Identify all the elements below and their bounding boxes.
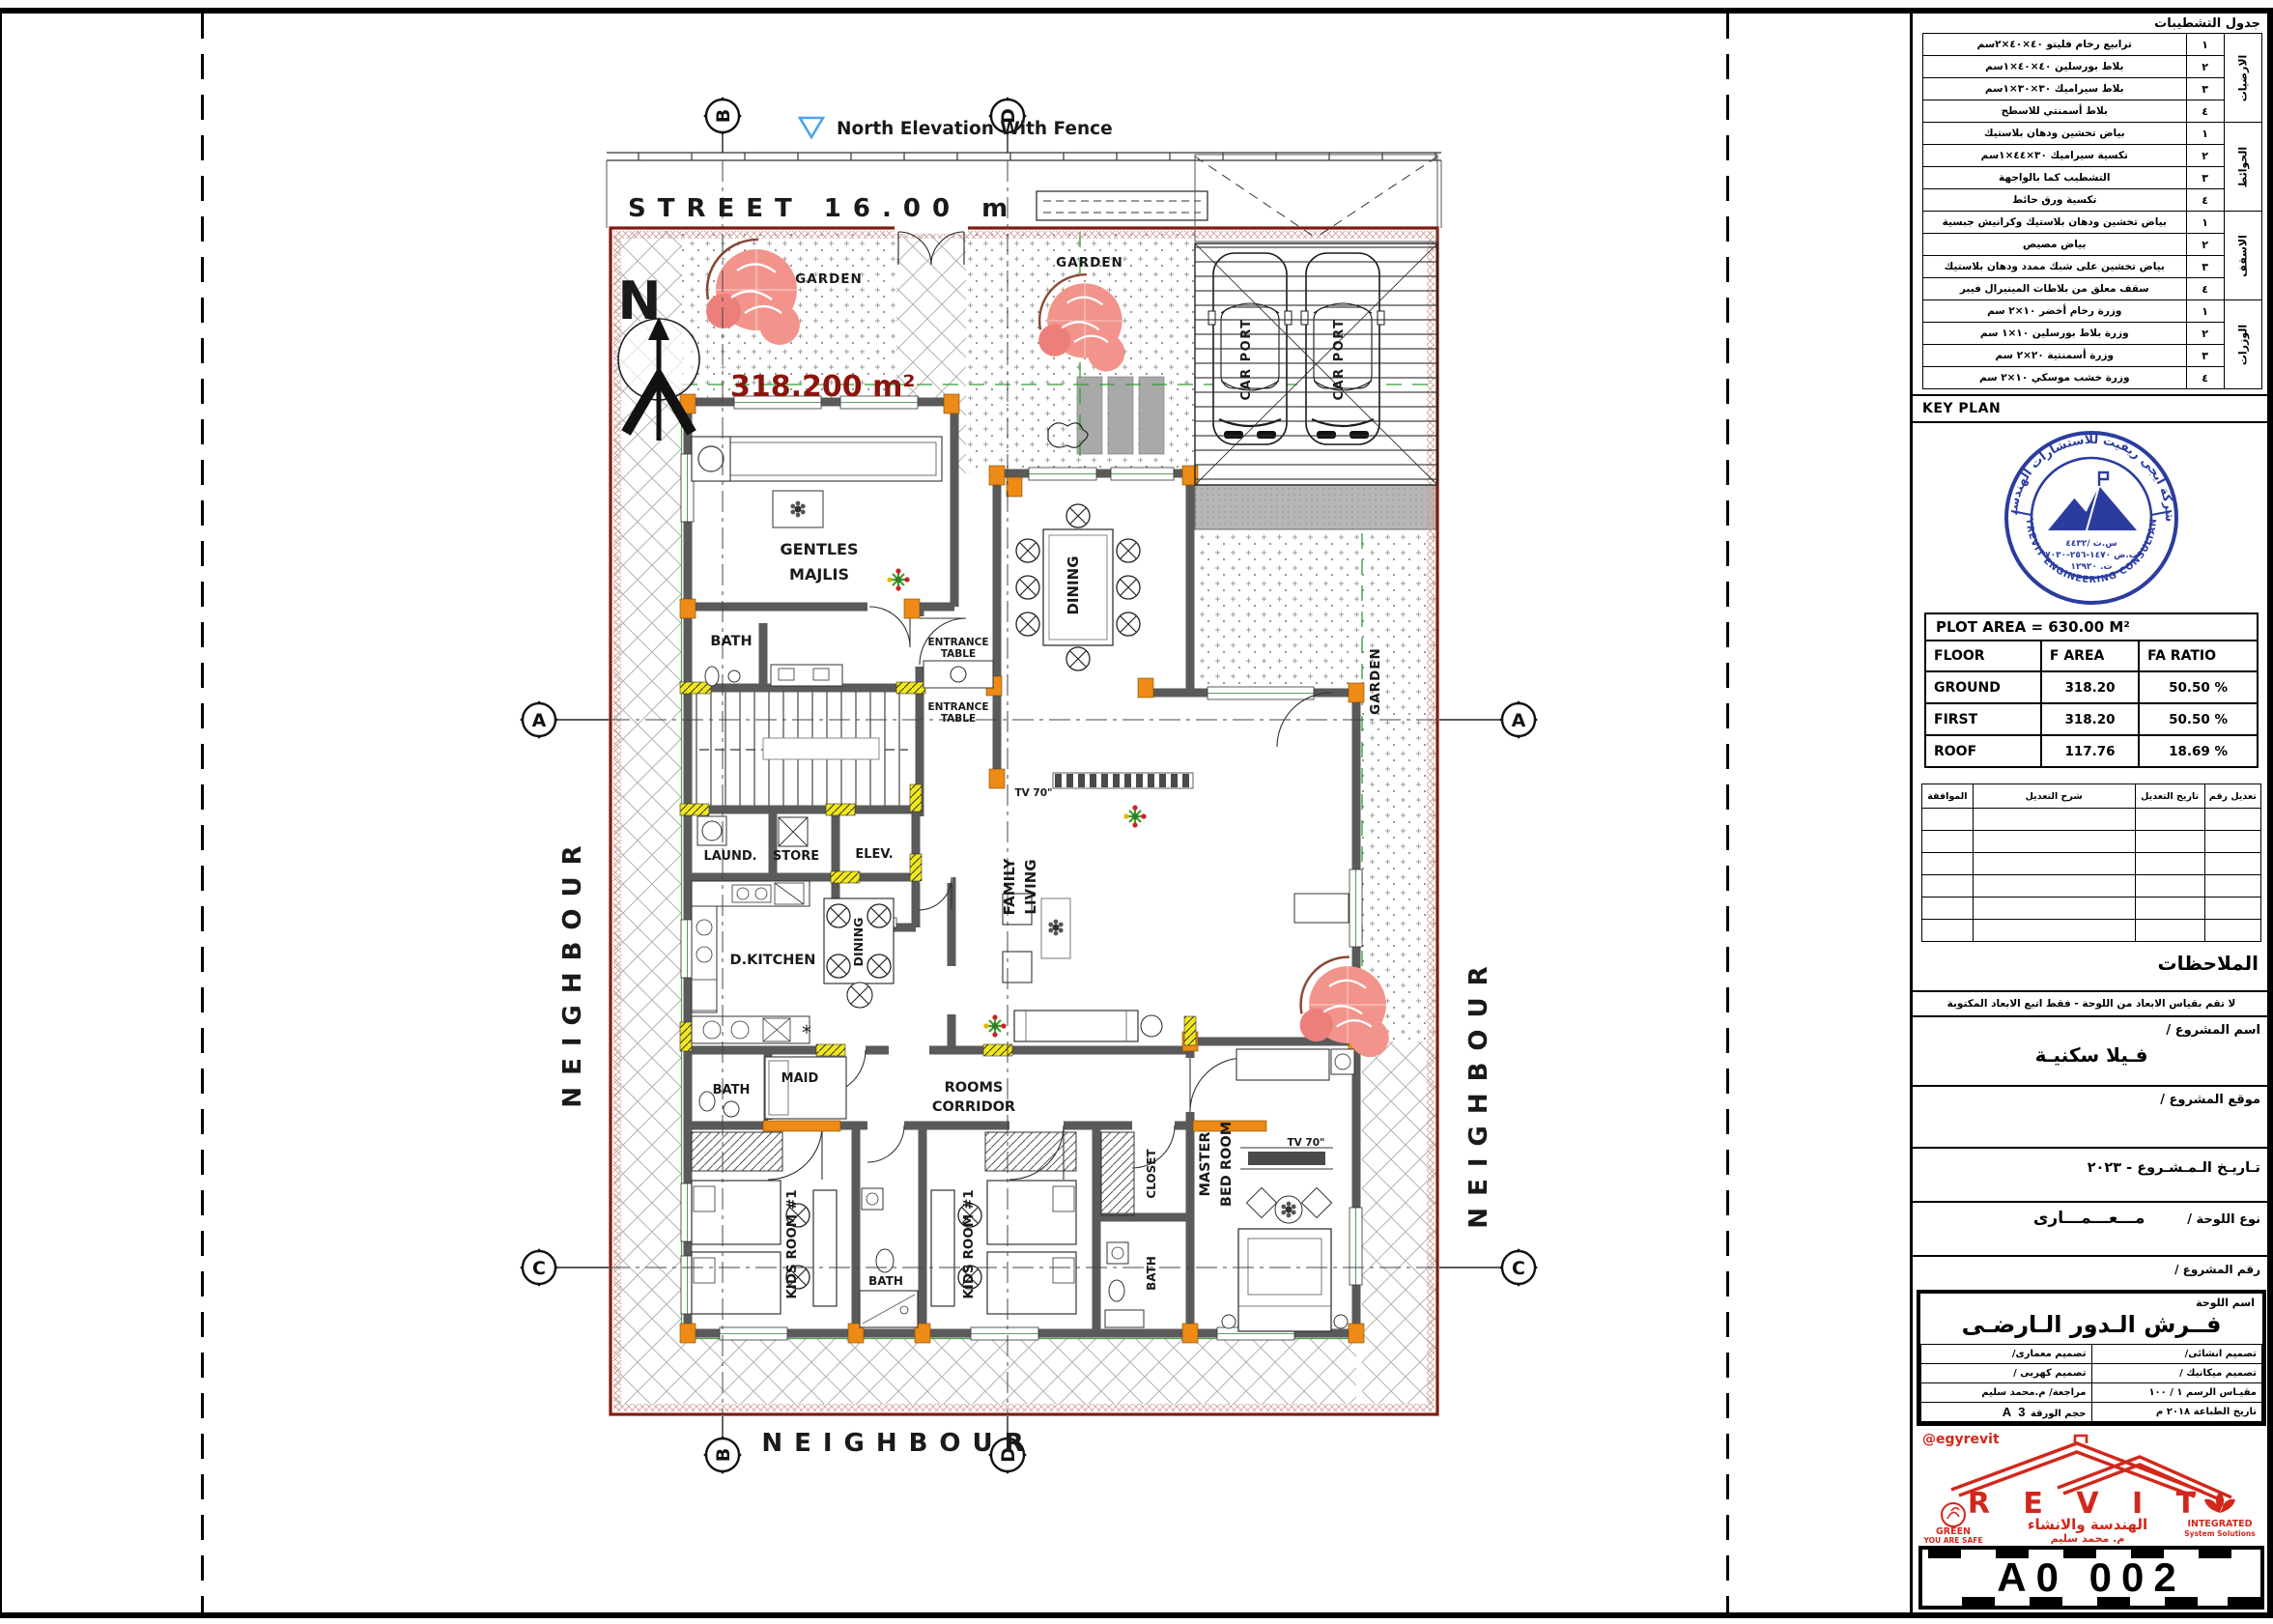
sheet-border-bottom [0,1612,2273,1618]
logo-right1: INTEGRATED [2187,1519,2252,1529]
rev-col-number: تعديل رقم [2204,784,2260,809]
finish-no: ٤ [2186,100,2224,123]
entrance-table-2a: ENTRANCE [928,701,989,713]
project-number-label: رقم المشروع / [2174,1263,2260,1276]
sheet-border-left [0,8,2,1618]
fold-line-left [201,14,204,1612]
finish-no: ٢ [2186,145,2224,167]
plot-cell: 318.20 [2041,671,2139,703]
finish-no: ٣ [2186,78,2224,100]
finishing-table-title: جدول التشطيبات [1913,14,2270,32]
grid-bubble-a-right: A [1512,710,1526,731]
stamp-line2: ب.ض ١٤٧٠-٢٥٦-٧٠٣٠ [2045,551,2138,560]
logo-person: م. محمد سليم [2051,1532,2125,1544]
logo-right2: System Solutions [2184,1529,2256,1538]
finish-desc: التشطيب كما بالواجهة [1923,167,2187,189]
elevator-label: ELEV. [855,847,893,862]
closet-label: CLOSET [1145,1149,1158,1199]
finish-desc: بياض تخشين ودهان بلاستيك [1923,123,2187,145]
finish-group: الحوائط [2224,123,2261,212]
finish-desc: بياض تخشين على شبك ممدد ودهان بلاستيك [1923,256,2187,278]
project-number-section: رقم المشروع / [1913,1255,2270,1288]
plot-cell: FIRST [1925,703,2041,735]
logo-left2: YOU ARE SAFE [1922,1536,1982,1544]
sheet-border-right [2267,8,2273,1618]
rev-col-description: شرح التعديل [1973,784,2135,809]
revision-row [1922,897,2261,920]
project-name-section: اسم المشروع / فـيلا سكنيـة [1913,1017,2270,1085]
finishing-table: ترابيع رخام فليتو ٤٠×٤٠×٢سم١الارضيات بلا… [1922,33,2262,389]
credit-arch: تصميم معمارى/ [1921,1345,2092,1364]
finish-desc: ترابيع رخام فليتو ٤٠×٤٠×٢سم [1923,34,2187,56]
store-label: STORE [773,849,819,864]
finish-desc: وزرة أسمنتية ٢٠×٢ سم [1923,345,2187,367]
remarks-title: الملاحظات [1913,942,2270,990]
gentles-majlis-label-1: GENTLES [780,540,858,558]
plot-cell: GROUND [1925,671,2041,703]
carport-label-2: CAR PORT [1332,318,1347,400]
rev-col-approval: الموافقة [1922,784,1974,809]
revision-row [1922,809,2261,831]
grid-bubble-c-left: C [532,1258,546,1279]
neighbour-label-right: NEIGHBOUR [1464,954,1493,1228]
credit-elec: تصميم كهربى / [1921,1364,2092,1383]
bath-master-label: BATH [1145,1256,1158,1291]
sheet-number: A0 002 [1997,1554,2185,1601]
sheet-name-box: اسم اللوحة فــرش الـدور الـارضـى تصميم م… [1917,1290,2266,1426]
revision-row [1922,875,2261,897]
logo-tagline: الهندسة والانشاء [2028,1516,2147,1533]
sheet-name-label: اسم اللوحة [1920,1294,2262,1309]
stamp-line1: س.ت /٤٤٣٢ [2065,539,2117,549]
garden-label-right: GARDEN [1368,647,1383,715]
maid-label: MAID [781,1071,819,1086]
finish-desc: بياض تخشين ودهان بلاستيك وكرانيش جبسية [1923,212,2187,234]
revision-table: الموافقة شرح التعديل تاريخ التعديل تعديل… [1921,784,2261,942]
corridor-label-1: ROOMS [945,1080,1004,1096]
entrance-table-2b: TABLE [941,713,976,725]
sheet-border-top [0,8,2273,14]
plot-col-floor: FLOOR [1925,641,2041,671]
dimension-notice: لا تقم بقياس الابعاد من اللوحة - فقط اتب… [1913,990,2270,1017]
dining-room-label: DINING [1065,556,1082,614]
fold-line-right [1726,14,1729,1612]
entrance-table-1b: TABLE [941,648,976,660]
neighbour-label-left: NEIGHBOUR [558,834,587,1107]
north-elevation-label: North Elevation With Fence [837,119,1113,139]
plot-area-table: PLOT AREA = 630.00 M² FLOOR F AREA FA RA… [1924,613,2259,768]
master-label-1: MASTER [1198,1131,1213,1196]
finish-no: ١ [2186,212,2224,234]
corridor-label-2: CORRIDOR [932,1099,1015,1115]
sheet-name-value: فــرش الـدور الـارضـى [1920,1309,2262,1344]
finish-desc: بلاط بورسلين ٤٠×٤٠×١سم [1923,56,2187,78]
finish-no: ١ [2186,123,2224,145]
garden-label-top-left: GARDEN [795,271,863,287]
revision-row [1922,920,2261,942]
finish-no: ٢ [2186,234,2224,256]
finish-no: ٣ [2186,345,2224,367]
grid-bubble-c-right: C [1512,1258,1525,1279]
plot-area-title: PLOT AREA = 630.00 M² [1925,613,2258,641]
finish-desc: تكسية سيراميك ٣٠×٤٤×١سم [1923,145,2187,167]
laundry-label: LAUND. [703,849,756,864]
finish-desc: بلاط أسمنتي للاسطح [1923,100,2187,123]
plot-cell: 50.50 % [2139,671,2258,703]
drawing-type-value: مـــعـــمـــارى [2033,1209,2145,1228]
finish-desc: بياض مصيص [1923,234,2187,256]
project-date-section: تـاريـخ الـمـشـروع - ٢٠٢٣ [1913,1147,2270,1201]
finish-group: الوزرات [2224,300,2261,389]
tv-master-label: TV 70" [1287,1137,1324,1149]
credit-scale: مقيـاس الرسم ١ / ١٠٠ [2091,1383,2262,1403]
plot-cell: 318.20 [2041,703,2139,735]
credit-review: مراجعة/ م.محمد سليم [1921,1383,2092,1403]
credit-paper: حجم الورقة A 3 [1921,1403,2092,1422]
project-location-section: موقع المشروع / [1913,1085,2270,1147]
finish-desc: وزرة خشب موسكي ١٠×٢ سم [1923,367,2187,389]
revision-row [1922,831,2261,853]
plot-cell: 50.50 % [2139,703,2258,735]
credit-struct: تصميم انشائى/ [2091,1345,2262,1364]
finish-desc: وزرة رخام أخضر ١٠×٢ سم [1923,300,2187,323]
drawing-sheet: * [0,0,2273,1624]
rev-col-date: تاريخ التعديل [2135,784,2204,809]
finish-no: ٤ [2186,367,2224,389]
drawing-type-label: نوع اللوحة / [2187,1212,2260,1227]
grid-bubble-b-top: B [713,109,734,123]
entrance-table-1a: ENTRANCE [928,637,989,648]
finish-no: ٢ [2186,56,2224,78]
grid-bubble-a-left: A [532,710,547,731]
finish-no: ٤ [2186,189,2224,212]
finish-no: ٣ [2186,256,2224,278]
grid-bubble-b-bottom: B [713,1448,734,1462]
family-living-label-1: FAMILY [1001,858,1018,916]
tv-family-label: TV 70" [1014,787,1052,799]
finish-no: ٤ [2186,278,2224,300]
plot-cell: 18.69 % [2139,735,2258,767]
street-label: STREET 16.00 m [628,194,1019,223]
neighbour-label-bottom: NEIGHBOUR [761,1429,1035,1458]
kids-room-1-label: KIDS ROOM #1 [784,1189,800,1298]
plot-col-ratio: FA RATIO [2139,641,2258,671]
family-living-label-2: LIVING [1022,859,1039,914]
master-label-2: BED ROOM [1219,1122,1235,1207]
finish-desc: بلاط سيراميك ٣٠×٣٠×١سم [1923,78,2187,100]
title-block: جدول التشطيبات ترابيع رخام فليتو ٤٠×٤٠×٢… [1910,14,2270,1612]
project-name-label: اسم المشروع / [2166,1023,2260,1038]
stamp-line3: ت. ١٢٩٢٠ [2070,562,2112,572]
plot-area-value: 318.200 m² [730,370,915,404]
finish-no: ٣ [2186,167,2224,189]
revision-row [1922,853,2261,875]
finish-desc: تكسية ورق حائط [1923,189,2187,212]
plot-cell: ROOF [1925,735,2041,767]
kitchen-dining-label: DINING [851,918,866,967]
sheet-number-box: A0 002 [1918,1546,2264,1610]
north-letter: N [617,271,661,331]
credit-mech: تصميم ميكانيك / [2091,1364,2262,1383]
plot-cell: 117.76 [2041,735,2139,767]
credit-print: تاريخ الطباعة ٢٠١٨ م [2091,1403,2262,1422]
bath-kids-label: BATH [868,1274,903,1288]
finish-no: ٢ [2186,323,2224,345]
finish-group: الارضيات [2224,34,2261,123]
kitchen-label: D.KITCHEN [730,953,816,968]
finish-desc: سقف معلق من بلاطات المينيرال فيبر [1923,278,2187,300]
drawing-type-section: نوع اللوحة / مـــعـــمـــارى [1913,1201,2270,1255]
finish-group: الاسقف [2224,212,2261,300]
bath-maid-label: BATH [713,1083,751,1097]
finish-no: ١ [2186,300,2224,323]
gentles-majlis-label-2: MAJLIS [789,565,849,584]
logo-handle: @egyrevit [1922,1432,2000,1447]
revit-logo: @egyrevit R E V I T الهندسة والانشاء م. … [1913,1430,2270,1544]
finish-no: ١ [2186,34,2224,56]
finish-desc: وزرة بلاط بورسلين ١٠×١ سم [1923,323,2187,345]
logo-green-icon [1942,1503,1965,1526]
kids-room-2-label: KIDS ROOM #1 [961,1189,977,1298]
company-stamp: شركة ايجي ريفيت للاستشارات الهندسية EGYR… [1913,423,2270,613]
credits-table: تصميم معمارى/ تصميم انشائى/ تصميم كهربى … [1920,1344,2262,1422]
project-name-value: فـيلا سكنيـة [1922,1043,2260,1067]
garden-label-top-center: GARDEN [1056,255,1123,271]
project-location-label: موقع المشروع / [2160,1093,2260,1107]
bath-majlis-label: BATH [710,634,752,649]
plot-col-farea: F AREA [2041,641,2139,671]
carport-label-1: CAR PORT [1239,318,1254,400]
svg-text:*: * [802,1021,811,1044]
key-plan-header: KEY PLAN [1913,394,2270,423]
project-date-label: تـاريـخ الـمـشـروع - ٢٠٢٣ [2088,1160,2260,1176]
